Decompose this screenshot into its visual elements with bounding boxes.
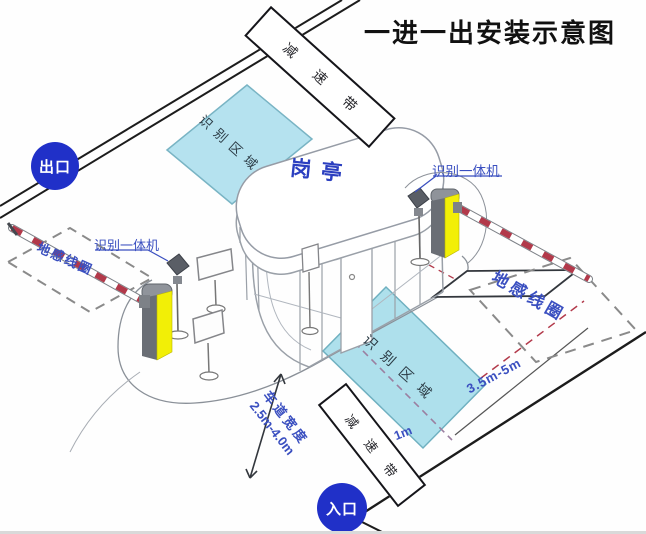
right-barrier-arm — [453, 202, 589, 279]
island-curb-extension — [70, 372, 140, 452]
entrance-badge: 入口 — [317, 483, 367, 533]
installation-diagram: 减速带 减速带 一进一出安装示意图 出口 入口 岗亭 识别区域 识别区域 地感线… — [0, 0, 646, 534]
entrance-badge-label: 入口 — [326, 498, 358, 519]
booth-label: 岗亭 — [289, 152, 354, 188]
exit-badge-label: 出口 — [39, 156, 71, 177]
right-reader-label: 识别一体机 — [432, 160, 500, 180]
left-reader-label: 识别一体机 — [94, 235, 159, 254]
door-knob — [350, 275, 355, 280]
sign-board-upper — [197, 249, 233, 313]
exit-badge: 出口 — [31, 142, 79, 190]
sign-board-lower — [193, 310, 224, 380]
diagram-title: 一进一出安装示意图 — [364, 13, 616, 50]
right-barrier-machine — [431, 189, 459, 258]
front-sign-board — [302, 244, 319, 335]
